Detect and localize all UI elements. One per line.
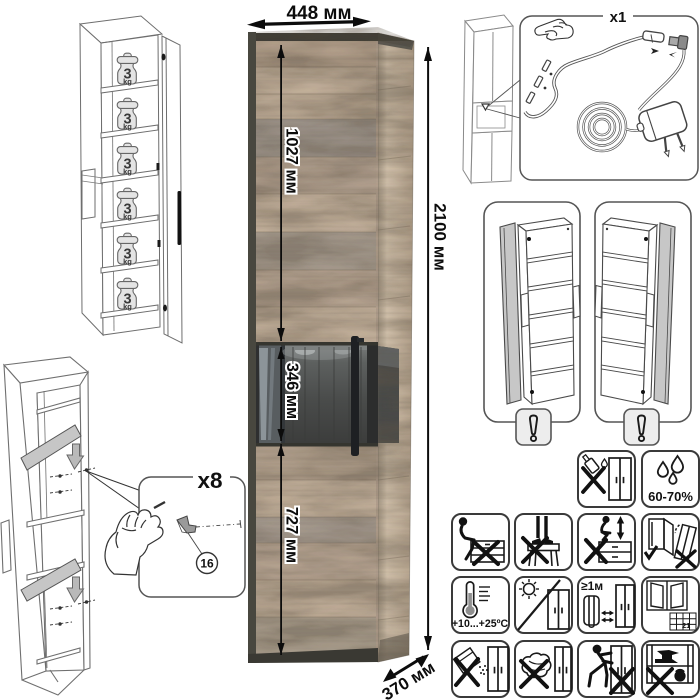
svg-text:+10...+25ºC: +10...+25ºC <box>452 618 509 630</box>
svg-text:16: 16 <box>200 557 214 571</box>
svg-text:1027 мм: 1027 мм <box>283 128 301 194</box>
svg-text:727 мм: 727 мм <box>283 507 301 564</box>
svg-text:346 мм: 346 мм <box>283 363 301 420</box>
svg-text:60-70%: 60-70% <box>648 489 693 504</box>
svg-text:≥1м: ≥1м <box>581 579 603 593</box>
svg-text:x8: x8 <box>197 468 222 493</box>
svg-text:x1: x1 <box>610 9 627 26</box>
svg-text:2100 мм: 2100 мм <box>431 203 450 271</box>
svg-text:21: 21 <box>682 621 690 630</box>
